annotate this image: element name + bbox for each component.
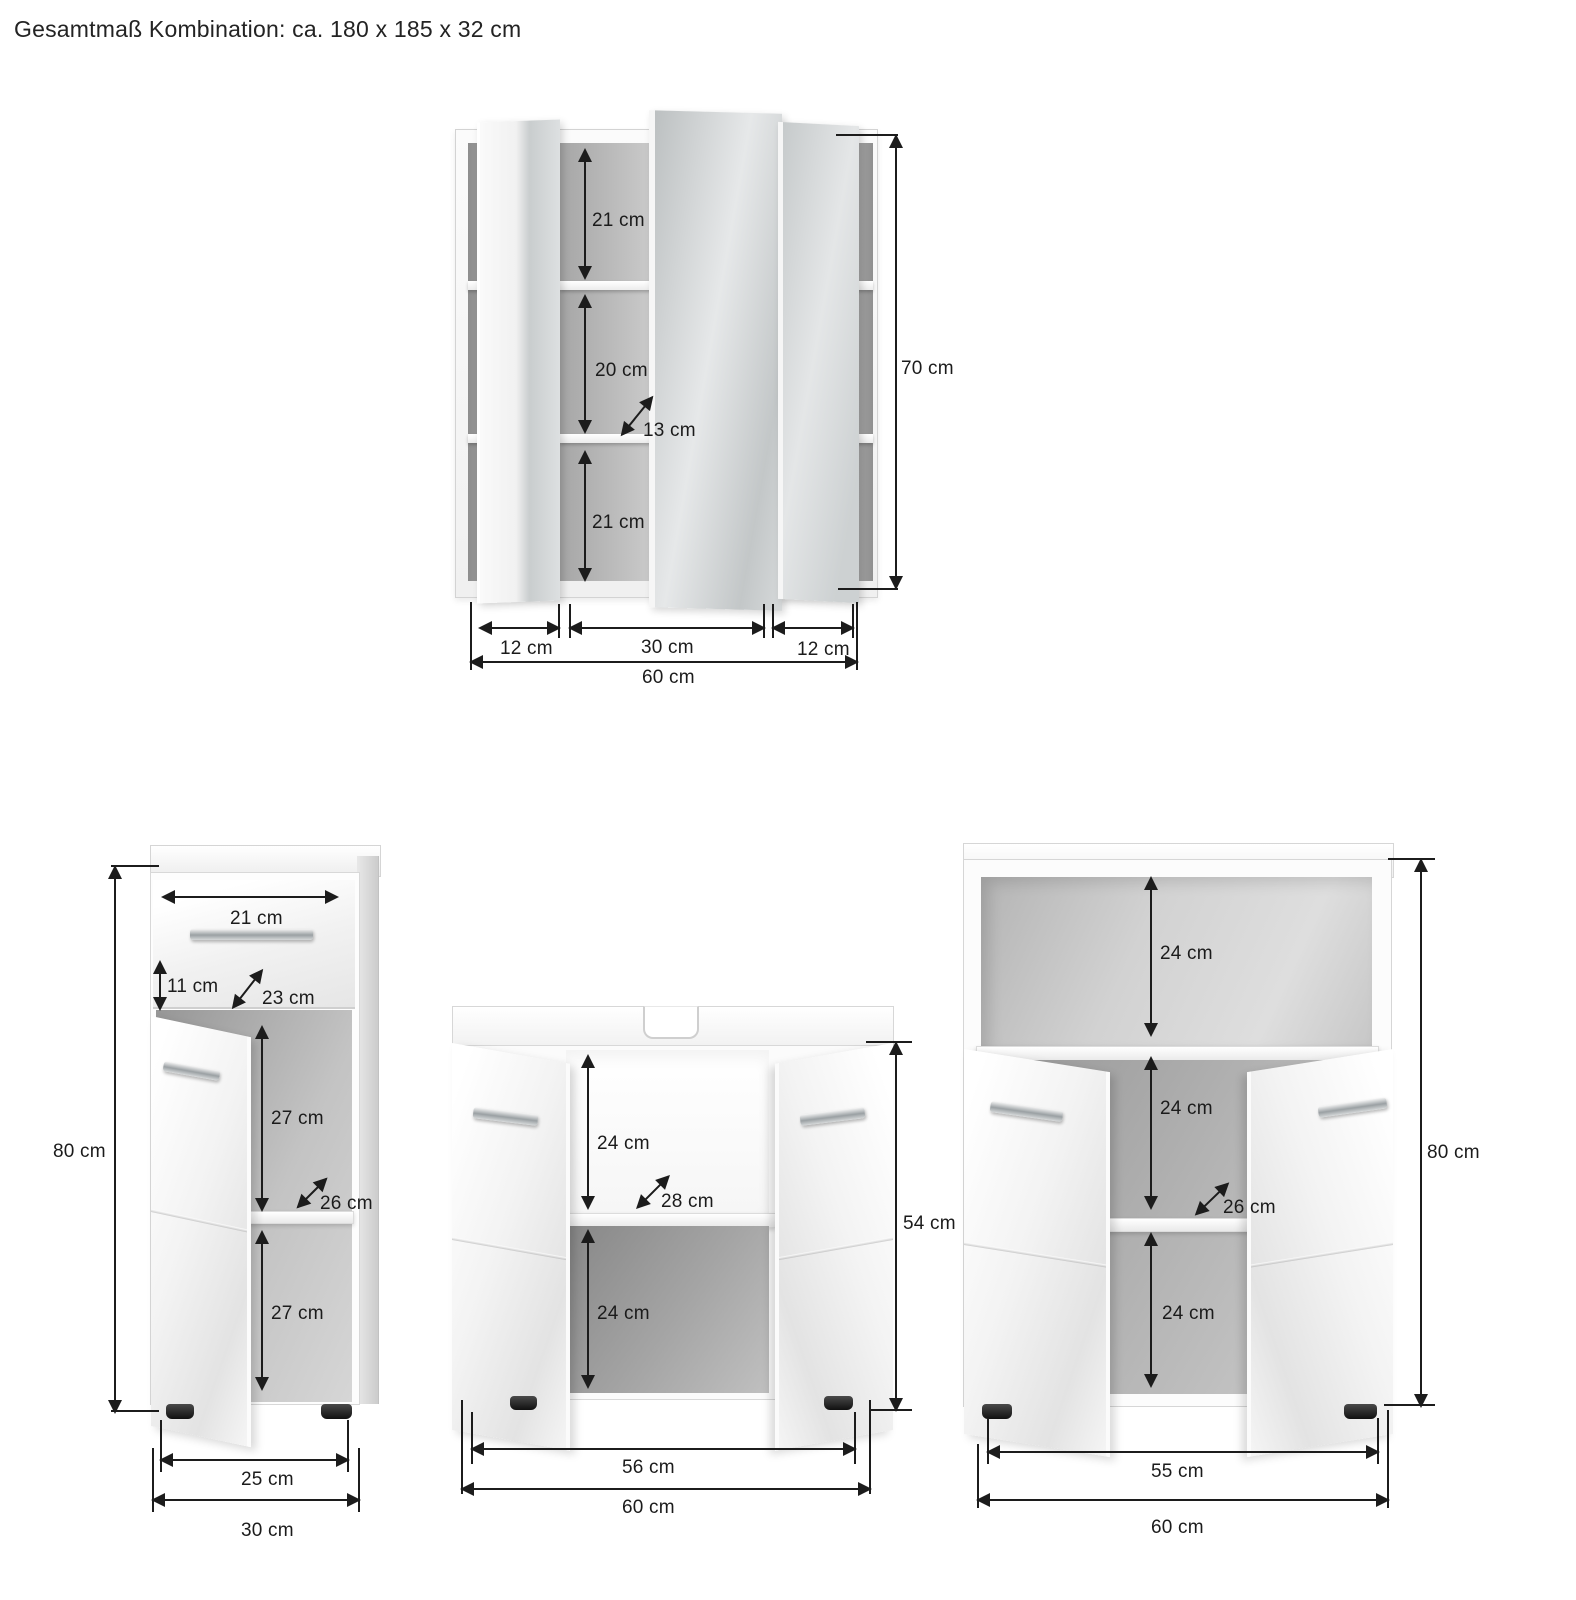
dim-arrow-floor-height xyxy=(1420,860,1422,1406)
dim-label-floor-compartment-bottom: 24 cm xyxy=(1162,1303,1215,1325)
cabinet-foot xyxy=(1344,1404,1377,1419)
dim-arrow-floor-total-width xyxy=(978,1499,1388,1501)
dim-label-floor-total-width: 60 cm xyxy=(1151,1517,1204,1539)
dim-label-floor-depth: 26 cm xyxy=(1223,1197,1276,1219)
dim-arrow-floor-compartment-middle xyxy=(1150,1058,1152,1208)
dim-arrow-floor-shelf-height xyxy=(1150,878,1152,1035)
door-groove xyxy=(964,1242,1106,1267)
dim-label-floor-height: 80 cm xyxy=(1427,1142,1480,1164)
dim-label-floor-compartment-middle: 24 cm xyxy=(1160,1098,1213,1120)
dim-label-floor-shelf-height: 24 cm xyxy=(1160,943,1213,965)
dim-label-floor-inner-width: 55 cm xyxy=(1151,1461,1204,1483)
door-groove xyxy=(1251,1242,1393,1267)
extension-line xyxy=(1384,1404,1435,1406)
dim-arrow-floor-compartment-bottom xyxy=(1150,1234,1152,1386)
floor-cabinet-figure: 24 cm 24 cm 26 cm 24 cm 80 cm 55 cm 60 c… xyxy=(0,0,1576,1600)
dimension-diagram: Gesamtmaß Kombination: ca. 180 x 185 x 3… xyxy=(0,0,1576,1600)
cabinet-foot xyxy=(982,1404,1012,1419)
dim-arrow-floor-inner-width xyxy=(988,1451,1378,1453)
